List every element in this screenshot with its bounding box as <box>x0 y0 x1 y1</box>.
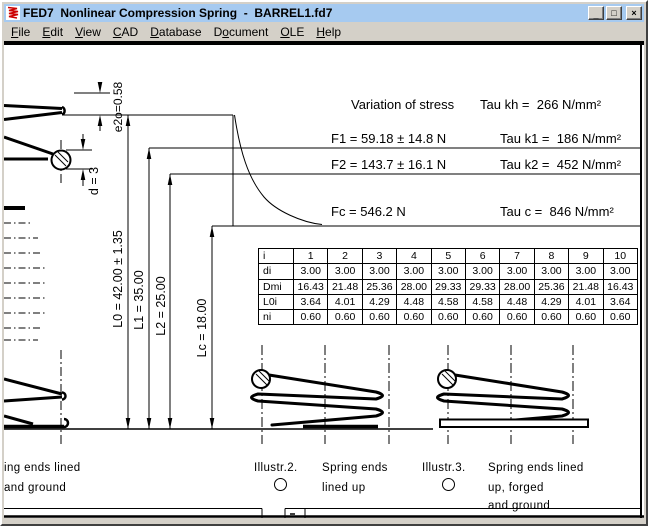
table-cell: 25.36 <box>534 279 568 294</box>
menu-item-document[interactable]: Document <box>208 24 275 40</box>
table-cell: 4.48 <box>397 294 431 309</box>
caption-spring2-line1: Spring ends <box>322 462 388 475</box>
table-cell: 4.01 <box>569 294 603 309</box>
table-cell: 28.00 <box>397 279 431 294</box>
table-cell: 0.60 <box>397 310 431 325</box>
table-col-header: 8 <box>534 249 568 264</box>
illustr3-label: Illustr.3. <box>422 462 466 475</box>
table-cell: 3.00 <box>603 264 637 279</box>
table-cell: 3.64 <box>294 294 328 309</box>
table-col-header: 1 <box>294 249 328 264</box>
menu-item-view[interactable]: View <box>69 24 107 40</box>
table-cell: 21.48 <box>328 279 362 294</box>
table-cell: 3.00 <box>431 264 465 279</box>
table-cell: 3.00 <box>465 264 499 279</box>
table-row-label: ni <box>259 310 294 325</box>
caption-spring3-line1: Spring ends lined <box>488 462 584 475</box>
illustr2-label: Illustr.2. <box>254 462 298 475</box>
table-col-header: 7 <box>500 249 534 264</box>
drawing-canvas[interactable]: Variation of stress Tau kh = 266 N/mm² F… <box>4 45 644 518</box>
table-cell: 0.60 <box>534 310 568 325</box>
dimension-d-label: d = 3 <box>87 167 101 195</box>
table-cell: 3.00 <box>500 264 534 279</box>
load-curve <box>233 115 322 226</box>
table-row-label: L0i <box>259 294 294 309</box>
app-icon <box>6 6 20 20</box>
table-cell: 0.60 <box>569 310 603 325</box>
tau-k1-value: Tau k1 = 186 N/mm² <box>500 132 621 146</box>
table-cell: 3.00 <box>328 264 362 279</box>
table-cell: 0.60 <box>294 310 328 325</box>
table-cell: 29.33 <box>431 279 465 294</box>
table-cell: 4.29 <box>534 294 568 309</box>
window-controls: _ □ × <box>588 6 642 20</box>
table-corner-label: i <box>259 249 294 264</box>
table-cell: 0.60 <box>603 310 637 325</box>
table-cell: 21.48 <box>569 279 603 294</box>
left-spring <box>4 106 71 445</box>
f2-value: F2 = 143.7 ± 16.1 N <box>331 158 446 172</box>
table-cell: 0.60 <box>465 310 499 325</box>
dimension-lc-label: Lc = 18.00 <box>195 299 209 358</box>
table-cell: 16.43 <box>603 279 637 294</box>
dimension-l2-label: L2 = 25.00 <box>154 276 168 335</box>
tau-k2-value: Tau k2 = 452 N/mm² <box>500 158 621 172</box>
table-cell: 3.00 <box>397 264 431 279</box>
table-col-header: 6 <box>465 249 499 264</box>
caption-spring2-line2: lined up <box>322 482 365 495</box>
menu-item-cad[interactable]: CAD <box>107 24 144 40</box>
dimension-l1-label: L1 = 35.00 <box>132 270 146 329</box>
table-col-header: 4 <box>397 249 431 264</box>
window-title: FED7 Nonlinear Compression Spring - BARR… <box>23 4 585 22</box>
illustr3-radio[interactable] <box>442 478 455 491</box>
spring-illustration-3 <box>438 370 589 427</box>
table-cell: 3.00 <box>534 264 568 279</box>
caption-left-line1: ing ends lined <box>4 462 81 475</box>
app-window: FED7 Nonlinear Compression Spring - BARR… <box>0 0 648 526</box>
table-cell: 3.00 <box>294 264 328 279</box>
table-cell: 29.33 <box>465 279 499 294</box>
menu-item-edit[interactable]: Edit <box>36 24 69 40</box>
table-col-header: 3 <box>362 249 396 264</box>
spring-illustration-2 <box>252 370 383 427</box>
dimension-e2o-label: e2o=0.58 <box>111 82 125 132</box>
table-cell: 4.58 <box>431 294 465 309</box>
table-cell: 25.36 <box>362 279 396 294</box>
menu-item-file[interactable]: File <box>5 24 36 40</box>
table-col-header: 2 <box>328 249 362 264</box>
table-cell: 0.60 <box>431 310 465 325</box>
table-cell: 0.60 <box>500 310 534 325</box>
table-row-label: di <box>259 264 294 279</box>
table-cell: 3.00 <box>569 264 603 279</box>
tau-c-value: Tau c = 846 N/mm² <box>500 205 614 219</box>
coil-table: i12345678910di3.003.003.003.003.003.003.… <box>258 248 638 325</box>
caption-spring3-line3: and ground <box>488 500 550 513</box>
barrel-envelope <box>4 223 48 340</box>
dimension-arrows <box>81 82 215 429</box>
table-cell: 4.01 <box>328 294 362 309</box>
variation-of-stress-label: Variation of stress <box>351 98 454 112</box>
table-cell: 4.58 <box>465 294 499 309</box>
titlebar[interactable]: FED7 Nonlinear Compression Spring - BARR… <box>4 4 644 22</box>
menubar: FileEditViewCADDatabaseDocumentOLEHelp <box>2 22 646 41</box>
menu-item-database[interactable]: Database <box>144 24 207 40</box>
table-cell: 4.48 <box>500 294 534 309</box>
f1-value: F1 = 59.18 ± 14.8 N <box>331 132 446 146</box>
tau-kh-value: Tau kh = 266 N/mm² <box>480 98 601 112</box>
dimension-l0-label: L0 = 42.00 ± 1.35 <box>111 230 125 328</box>
table-col-header: 5 <box>431 249 465 264</box>
table-row-label: Dmi <box>259 279 294 294</box>
table-cell: 3.00 <box>362 264 396 279</box>
table-col-header: 10 <box>603 249 637 264</box>
table-cell: 28.00 <box>500 279 534 294</box>
caption-spring3-line2: up, forged <box>488 482 544 495</box>
table-cell: 3.64 <box>603 294 637 309</box>
fc-value: Fc = 546.2 N <box>331 205 406 219</box>
maximize-button[interactable]: □ <box>606 6 622 20</box>
table-cell: 0.60 <box>328 310 362 325</box>
minimize-button[interactable]: _ <box>588 6 604 20</box>
close-button[interactable]: × <box>626 6 642 20</box>
caption-left-line2: and ground <box>4 482 66 495</box>
table-col-header: 9 <box>569 249 603 264</box>
table-cell: 4.29 <box>362 294 396 309</box>
table-cell: 0.60 <box>362 310 396 325</box>
illustr2-radio[interactable] <box>274 478 287 491</box>
table-cell: 16.43 <box>294 279 328 294</box>
menu-item-ole[interactable]: OLE <box>274 24 310 40</box>
menu-item-help[interactable]: Help <box>310 24 347 40</box>
